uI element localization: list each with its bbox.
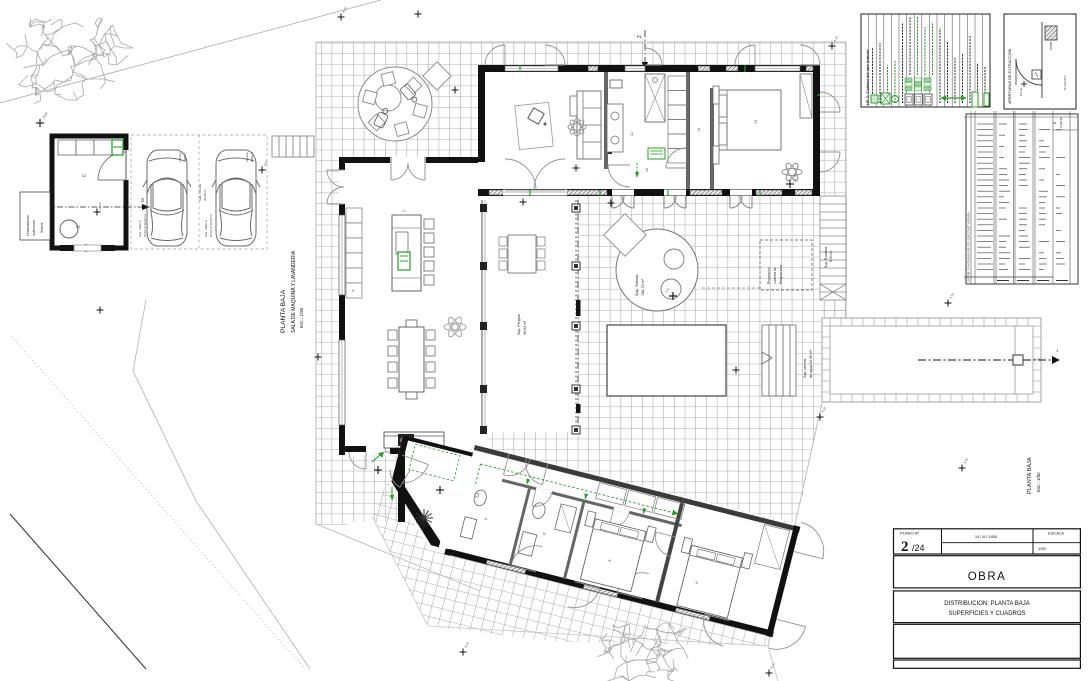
svg-text:Sup. lamina: Sup. lamina (803, 359, 807, 378)
svg-text:Solera: Solera (40, 223, 44, 233)
svg-text:36,54 m²: 36,54 m² (523, 320, 527, 335)
svg-text:B: B (1053, 122, 1057, 124)
svg-text:LV: LV (402, 209, 405, 213)
svg-text:ESCALA: ESCALA (1048, 531, 1064, 536)
svg-text:PLANTA BAJA: PLANTA BAJA (280, 289, 287, 333)
svg-text:de agua:34,50 m²: de agua:34,50 m² (809, 349, 813, 378)
svg-text:14 / 8 / 2450: 14 / 8 / 2450 (975, 534, 998, 539)
svg-text:HS 3: Calidad del aire interio: HS 3: Calidad del aire interior (865, 49, 870, 105)
svg-text:5,90 m²: 5,90 m² (829, 250, 833, 262)
svg-text:30,00 m²: 30,00 m² (203, 189, 207, 201)
svg-text:Altillo 2: Altillo 2 (250, 152, 254, 162)
svg-text:Altillo 1: Altillo 1 (183, 152, 187, 162)
svg-text:10: 10 (645, 168, 649, 172)
svg-text:2: 2 (637, 35, 643, 38)
svg-text:+0,05: +0,05 (98, 202, 102, 210)
svg-text:3: 3 (141, 198, 144, 204)
svg-text:SALA DE MAQUINA Y LAVANDERIA: SALA DE MAQUINA Y LAVANDERIA (291, 250, 297, 333)
svg-text:/24: /24 (912, 543, 925, 553)
svg-text:18,62 m² 18,00 m²: 18,62 m² 18,00 m² (143, 214, 147, 237)
svg-text:158,75 m²: 158,75 m² (641, 278, 645, 296)
svg-text:11: 11 (630, 132, 634, 136)
svg-text:Urbanización: Urbanización (26, 215, 30, 236)
svg-text:2: 2 (901, 539, 909, 555)
svg-text:1/50: 1/50 (1038, 546, 1047, 551)
svg-text:PLANTA: PLANTA (1059, 117, 1063, 128)
svg-text:Sup. Altillo 2:: Sup. Altillo 2: (204, 219, 208, 237)
svg-text:DISTRIB. PLANTA BAJA SUP. UTI: DISTRIB. PLANTA BAJA SUP. UTIL SUP.CONST… (967, 212, 971, 282)
svg-text:Sup. Pergola: Sup. Pergola (517, 314, 521, 335)
svg-text:SUPERFICIES Y CUADROS: SUPERFICIES Y CUADROS (948, 611, 1025, 617)
svg-text:exteriores: exteriores (32, 220, 36, 236)
svg-text:Sup. Terraza:: Sup. Terraza: (198, 183, 202, 201)
svg-text:Sup. Altillo 1:: Sup. Altillo 1: (138, 219, 142, 237)
svg-text:18,62 m² 18,00 m²: 18,62 m² 18,00 m² (209, 214, 213, 237)
svg-text:cubierta de: cubierta de (773, 267, 777, 284)
svg-text:PLANO Nº: PLANO Nº (900, 531, 920, 536)
svg-text:PLANTA BAJA: PLANTA BAJA (1027, 457, 1033, 494)
svg-text:Acceso: Acceso (245, 152, 249, 162)
svg-text:12: 12 (697, 128, 701, 132)
svg-text:+4,10: +4,10 (793, 174, 797, 182)
svg-text:250BB: 250BB (1049, 41, 1053, 50)
svg-text:13: 13 (754, 120, 758, 124)
svg-text:Proyección: Proyección (767, 267, 771, 284)
svg-text:Sup. Terraza: Sup. Terraza (635, 274, 639, 296)
svg-text:Esc.: 1/50: Esc.: 1/50 (1036, 472, 1041, 492)
svg-text:DISTRIBUCION: PLANTA BAJA: DISTRIBUCION: PLANTA BAJA (944, 601, 1030, 607)
svg-text:12: 12 (76, 224, 81, 229)
svg-text:B= 90,05cm: B= 90,05cm (1063, 74, 1067, 90)
svg-text:Esc.: 1/50: Esc.: 1/50 (299, 307, 304, 328)
svg-text:APERTURAS DE EXTRACCIÓN: APERTURAS DE EXTRACCIÓN (1007, 48, 1012, 104)
svg-text:Sup. Escalera: Sup. Escalera (824, 247, 828, 268)
svg-text:OBRA: OBRA (968, 571, 1007, 583)
svg-text:12: 12 (82, 173, 87, 178)
svg-text:Pérgola s/va: Pérgola s/va (779, 265, 783, 284)
svg-text:Pa.Va: Pa.Va (1019, 88, 1023, 96)
svg-text:Acceso: Acceso (178, 152, 182, 162)
